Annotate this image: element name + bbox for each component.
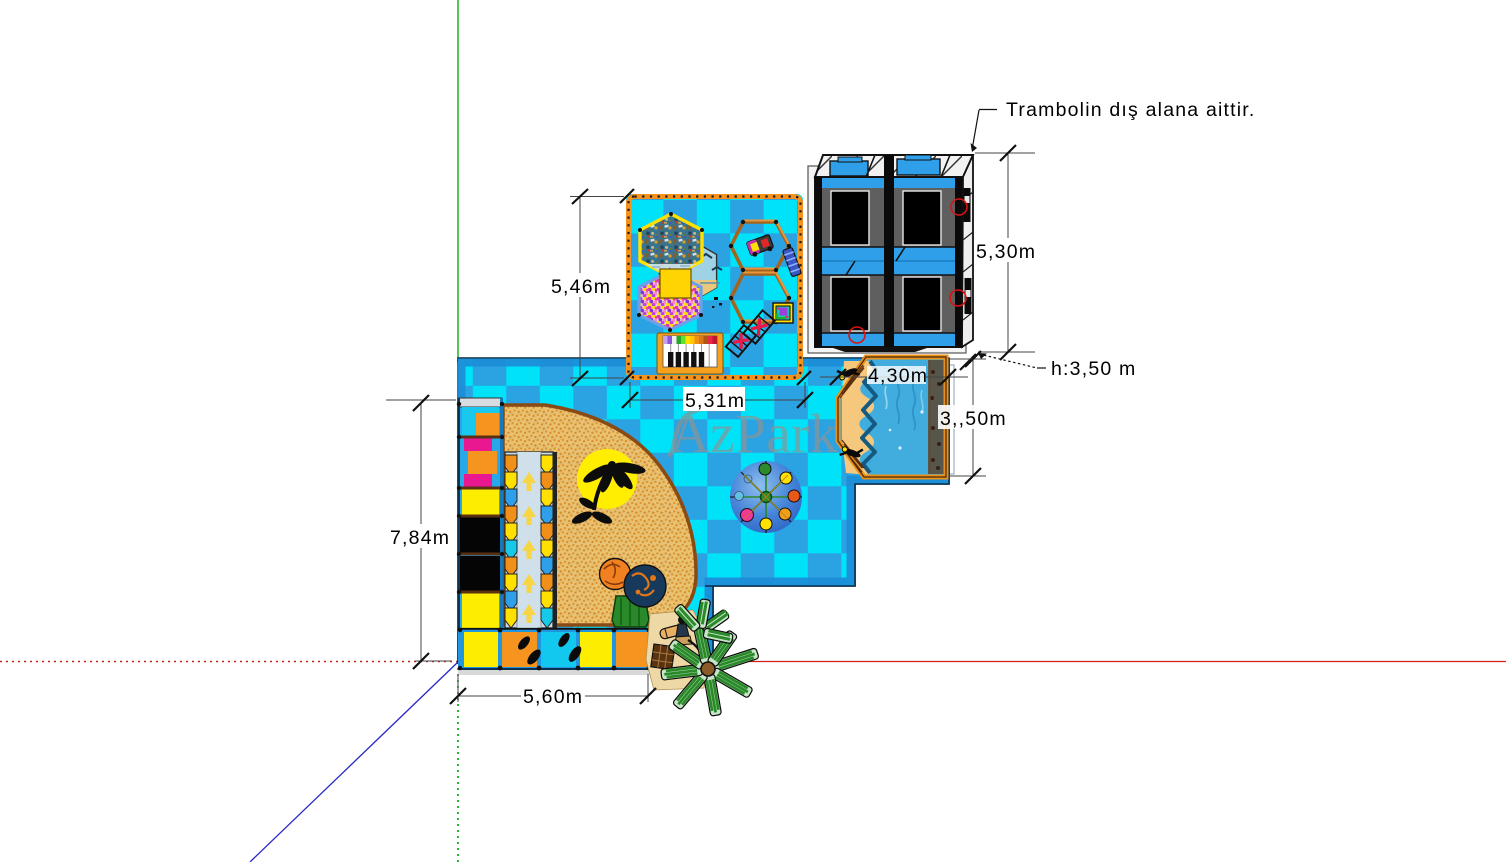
svg-text:Trambolin dış alana aittir.: Trambolin dış alana aittir. bbox=[1006, 99, 1256, 121]
svg-text:7,84m: 7,84m bbox=[390, 527, 450, 549]
svg-text:3,,50m: 3,,50m bbox=[940, 408, 1007, 430]
svg-text:5,60m: 5,60m bbox=[523, 686, 583, 708]
svg-text:h:3,50 m: h:3,50 m bbox=[1051, 358, 1136, 380]
svg-text:5,30m: 5,30m bbox=[976, 241, 1036, 263]
svg-text:5,31m: 5,31m bbox=[685, 390, 745, 412]
svg-text:4,30m: 4,30m bbox=[868, 365, 928, 387]
svg-text:5,46m: 5,46m bbox=[551, 276, 611, 298]
